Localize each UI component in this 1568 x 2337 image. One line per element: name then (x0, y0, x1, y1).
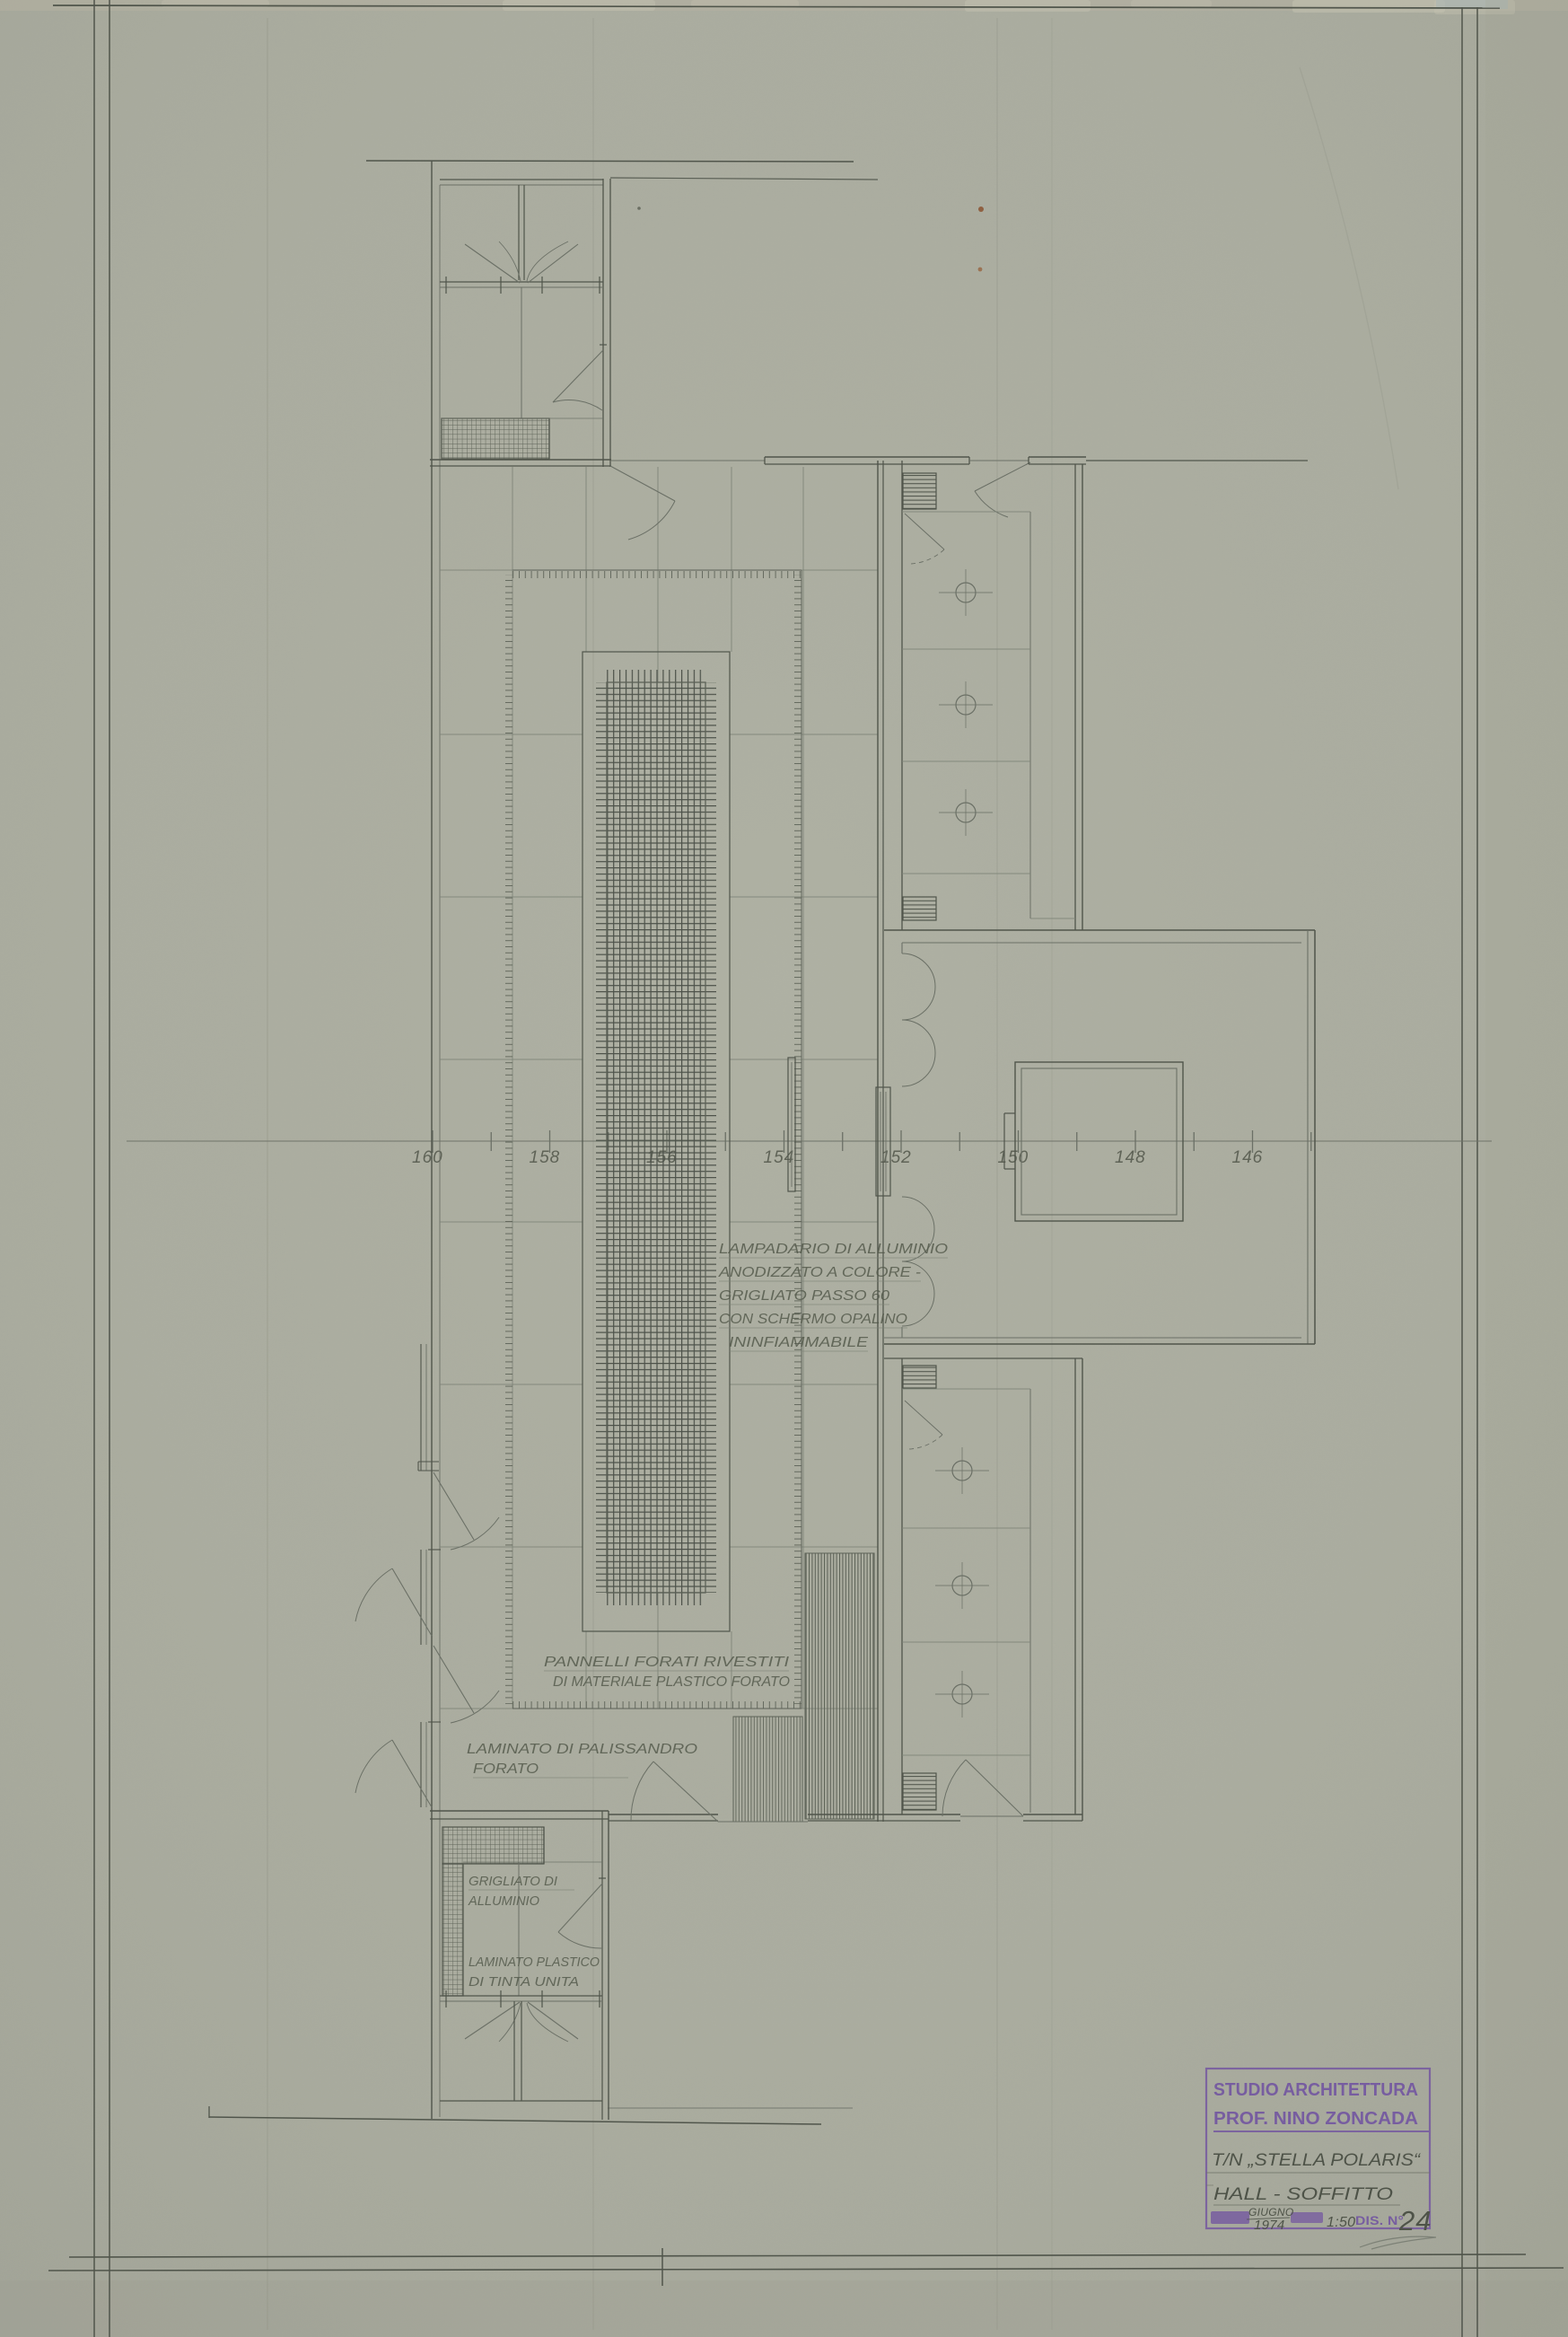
svg-text:CON SCHERMO OPALINO: CON SCHERMO OPALINO (719, 1312, 907, 1327)
svg-text:154: 154 (764, 1148, 795, 1167)
svg-text:LAMINATO PLASTICO: LAMINATO PLASTICO (469, 1955, 600, 1970)
svg-text:148: 148 (1115, 1148, 1146, 1167)
svg-text:LAMPADARIO DI ALLUMINIO: LAMPADARIO DI ALLUMINIO (719, 1242, 948, 1257)
svg-text:24: 24 (1398, 2205, 1432, 2236)
svg-text:DI TINTA UNITA: DI TINTA UNITA (469, 1974, 579, 1990)
svg-text:160: 160 (412, 1148, 443, 1167)
svg-text:152: 152 (880, 1148, 912, 1167)
svg-text:GIUGNO: GIUGNO (1248, 2206, 1293, 2218)
svg-text:HALL - SOFFITTO: HALL - SOFFITTO (1213, 2185, 1393, 2204)
svg-text:146: 146 (1232, 1148, 1264, 1167)
svg-text:150: 150 (998, 1148, 1029, 1167)
svg-text:T/N „STELLA POLARIS“: T/N „STELLA POLARIS“ (1212, 2151, 1422, 2170)
svg-text:ALLUMINIO: ALLUMINIO (468, 1893, 539, 1909)
svg-text:GRIGLIATO PASSO 60: GRIGLIATO PASSO 60 (719, 1288, 889, 1304)
svg-text:PANNELLI FORATI RIVESTITI: PANNELLI FORATI RIVESTITI (544, 1655, 790, 1670)
svg-text:LAMINATO DI PALISSANDRO: LAMINATO DI PALISSANDRO (467, 1742, 697, 1757)
svg-text:GRIGLIATO DI: GRIGLIATO DI (469, 1874, 557, 1889)
svg-text:ANODIZZATO A COLORE -: ANODIZZATO A COLORE - (718, 1265, 921, 1280)
svg-text:1974: 1974 (1254, 2218, 1285, 2233)
svg-text:158: 158 (530, 1148, 561, 1167)
svg-text:PROF. NINO ZONCADA: PROF. NINO ZONCADA (1213, 2109, 1418, 2129)
svg-text:STUDIO ARCHITETTURA: STUDIO ARCHITETTURA (1213, 2080, 1418, 2100)
svg-text:ININFIAMMABILE: ININFIAMMABILE (729, 1335, 868, 1350)
svg-text:DIS. N°: DIS. N° (1355, 2213, 1404, 2227)
svg-text:1:50: 1:50 (1327, 2215, 1355, 2230)
svg-text:FORATO: FORATO (473, 1762, 539, 1777)
svg-text:DI MATERIALE PLASTICO FORATO: DI MATERIALE PLASTICO FORATO (553, 1674, 790, 1690)
